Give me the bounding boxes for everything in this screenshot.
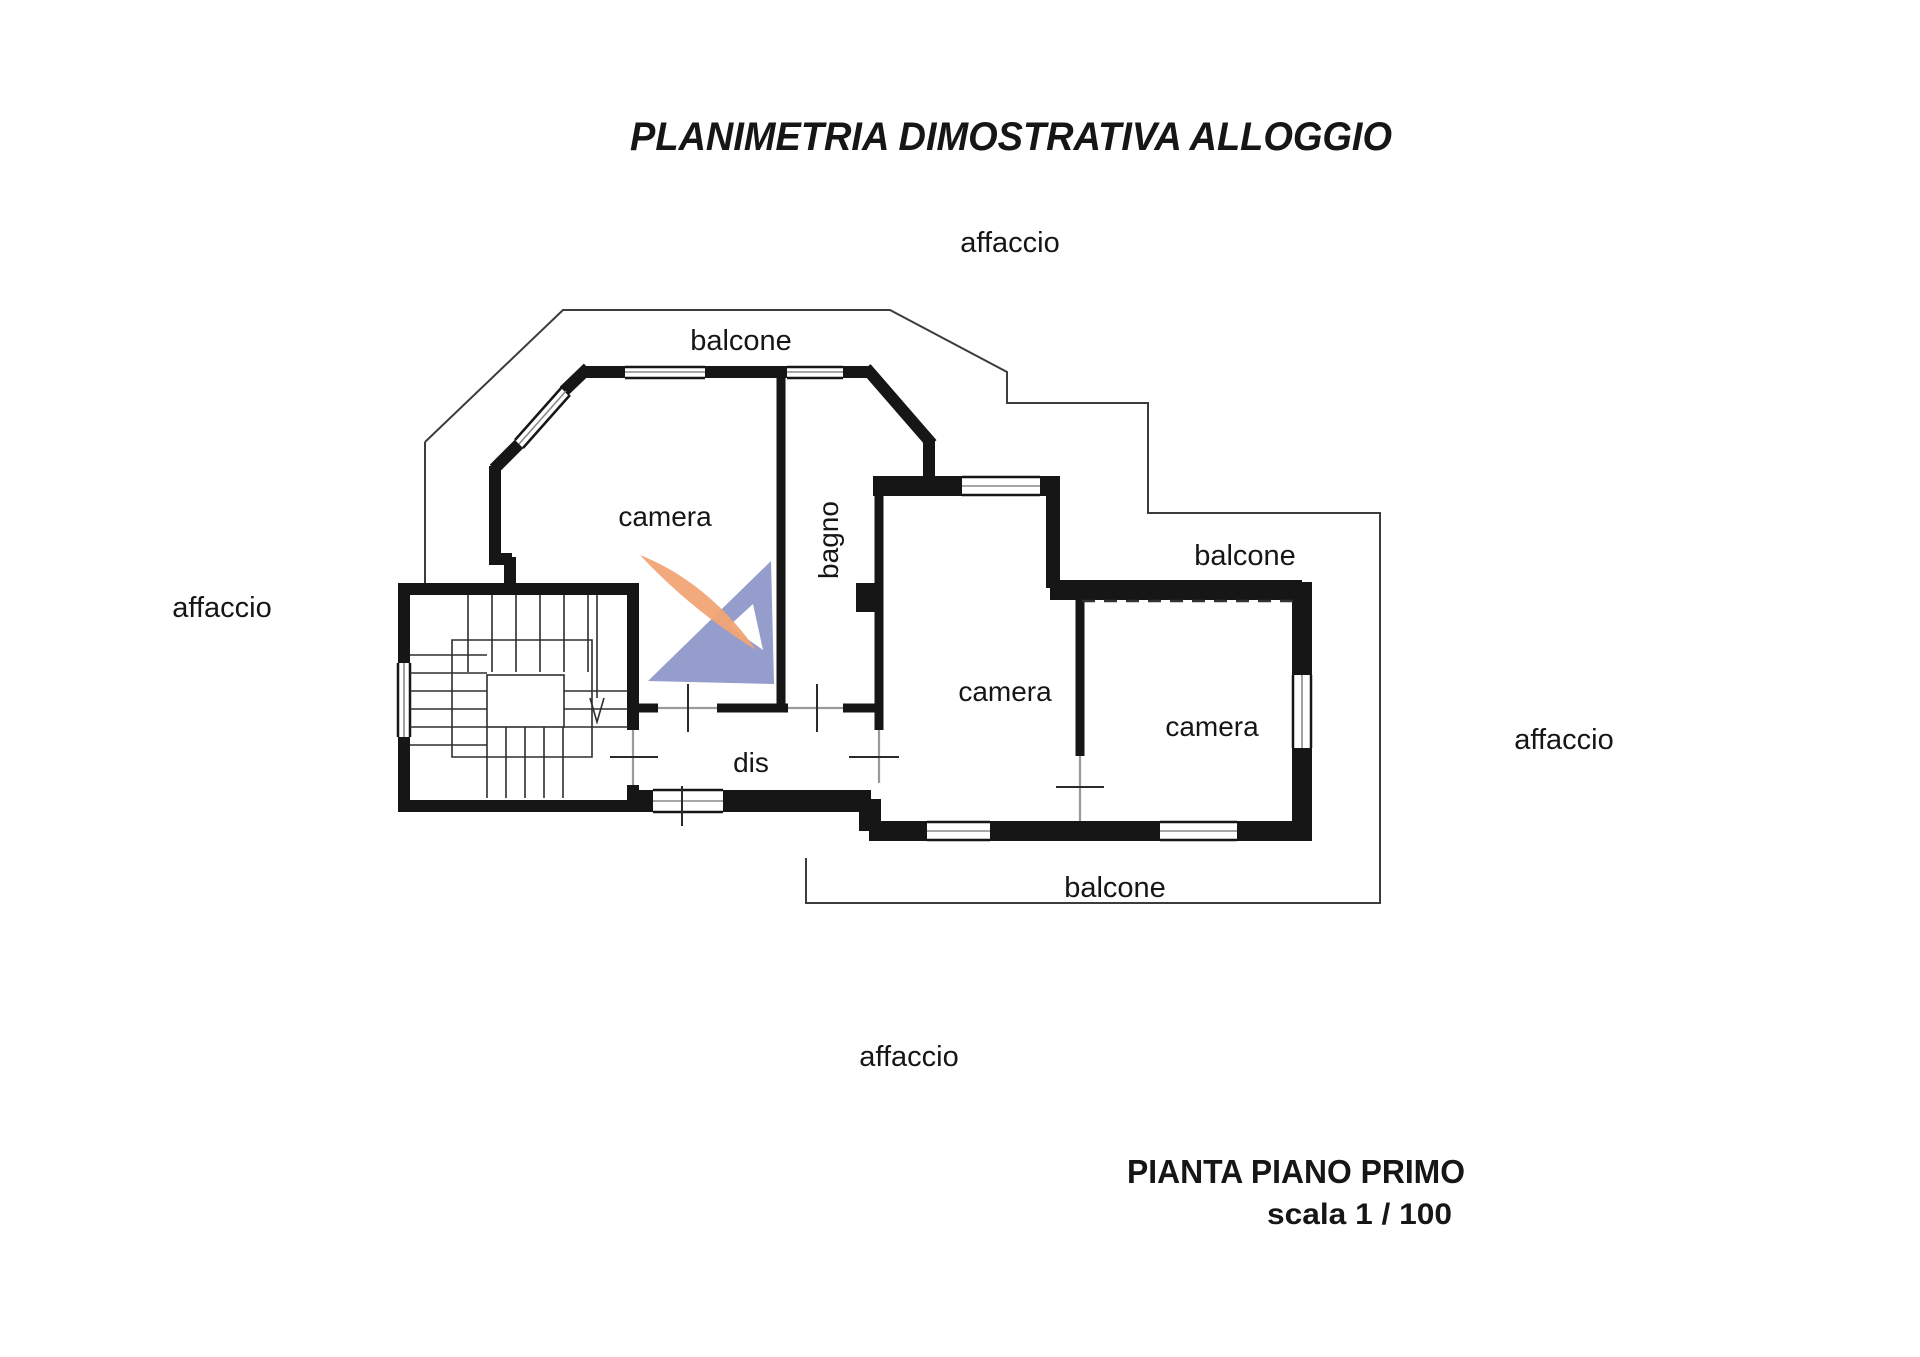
room-label-bagno: bagno (813, 501, 844, 579)
plan-scale-label: scala 1 / 100 (1267, 1198, 1452, 1231)
window-glass-outer (398, 367, 1311, 840)
window-glass-center (404, 372, 1302, 831)
exposure-label-left: affaccio (172, 592, 271, 624)
wall-pilaster (856, 583, 882, 612)
exposure-label-bottom: affaccio (859, 1041, 958, 1073)
floor-plan-drawing: PLANIMETRIA DIMOSTRATIVA ALLOGGIO affacc… (0, 0, 1920, 1357)
windows (398, 367, 1311, 840)
room-label-camera-3: camera (1165, 711, 1259, 742)
room-label-camera-2: camera (958, 676, 1052, 707)
labels: PLANIMETRIA DIMOSTRATIVA ALLOGGIO affacc… (172, 115, 1613, 1231)
watermark-logo (640, 555, 774, 684)
room-label-camera-1: camera (618, 501, 712, 532)
page-title: PLANIMETRIA DIMOSTRATIVA ALLOGGIO (630, 115, 1392, 159)
balcony-outline (425, 310, 1380, 903)
stairs (410, 595, 628, 798)
exposure-label-top: affaccio (960, 227, 1059, 259)
balcony-outline-top-right (425, 310, 1380, 903)
floor-plan-page: PLANIMETRIA DIMOSTRATIVA ALLOGGIO affacc… (0, 0, 1920, 1357)
walls (398, 368, 1310, 841)
stair-landing (487, 675, 564, 727)
plan-name-label: PIANTA PIANO PRIMO (1127, 1153, 1465, 1190)
balcony-label-bottom: balcone (1064, 872, 1166, 904)
balcony-label-top: balcone (690, 325, 792, 357)
balcony-label-right: balcone (1194, 540, 1296, 572)
exposure-label-right: affaccio (1514, 724, 1613, 756)
room-label-dis: dis (733, 747, 769, 778)
south-wall-dis (633, 799, 871, 831)
